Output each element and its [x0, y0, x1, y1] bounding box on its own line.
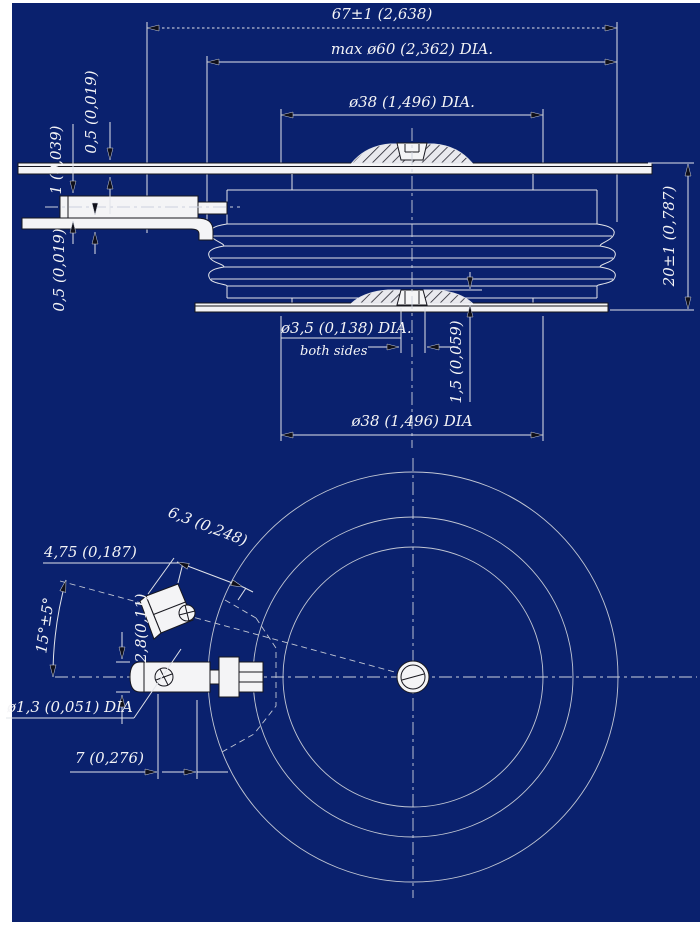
- technical-drawing: 67±1 (2,638) max ø60 (2,362) DIA. ø38 (1…: [0, 0, 700, 940]
- dim-gate-wire-diameter-label: ø1,3 (0,051) DIA: [6, 698, 133, 716]
- dim-pole-recess-label: 1,5 (0,059): [447, 320, 465, 403]
- dim-gate-lead-thickness-label: 0,5 (0,019): [50, 228, 68, 311]
- dim-top-lead-thickness-label: 0,5 (0,019): [82, 70, 100, 153]
- dim-terminal-thickness-label: 2,8(0,11): [132, 593, 150, 663]
- dim-center-hole-note: both sides: [300, 344, 368, 359]
- dim-overall-width-label: 67±1 (2,638): [332, 5, 433, 23]
- dim-max-diameter-label: max ø60 (2,362) DIA.: [331, 40, 493, 58]
- dim-pole-diameter-top-label: ø38 (1,496) DIA.: [348, 93, 475, 111]
- dim-gate-tube-label: 1 (0,039): [47, 125, 65, 194]
- dim-connector-width-label: 4,75 (0,187): [43, 543, 137, 561]
- dim-height-label: 20±1 (0,787): [660, 186, 678, 288]
- blueprint-background: [12, 3, 700, 922]
- dim-terminal-offset-label: 7 (0,276): [75, 749, 144, 767]
- dim-center-hole-label: ø3,5 (0,138) DIA.: [280, 319, 412, 337]
- center-hole-plan: [397, 661, 429, 693]
- top-lead: [18, 163, 652, 174]
